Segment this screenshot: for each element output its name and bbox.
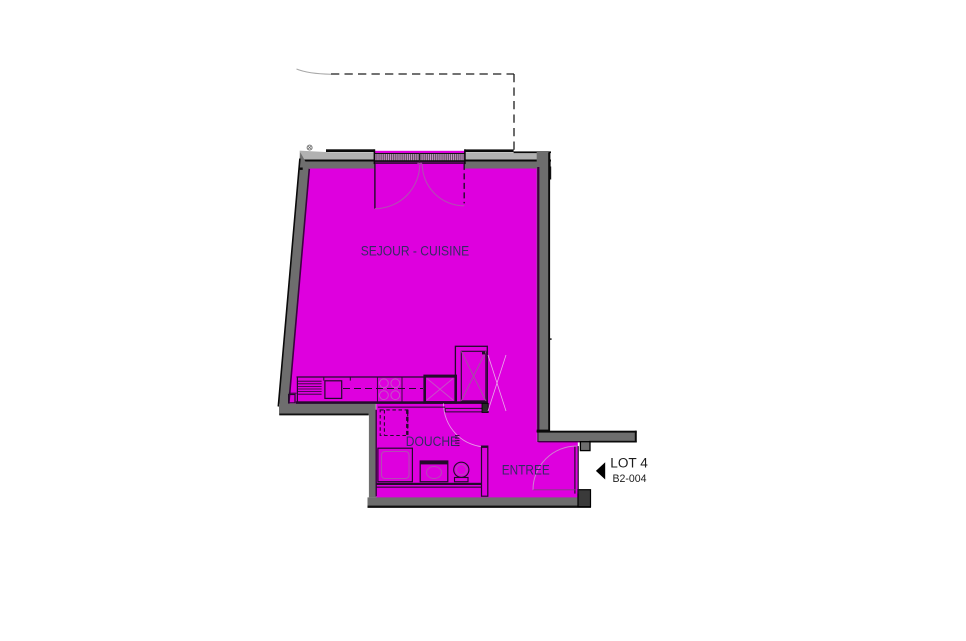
svg-text:LOT 4: LOT 4 xyxy=(610,456,648,472)
svg-text:ENTREE: ENTREE xyxy=(502,462,550,478)
svg-text:SEJOUR - CUISINE: SEJOUR - CUISINE xyxy=(361,243,470,259)
svg-text:B2-004: B2-004 xyxy=(613,473,647,485)
svg-text:DOUCHE: DOUCHE xyxy=(406,433,458,449)
